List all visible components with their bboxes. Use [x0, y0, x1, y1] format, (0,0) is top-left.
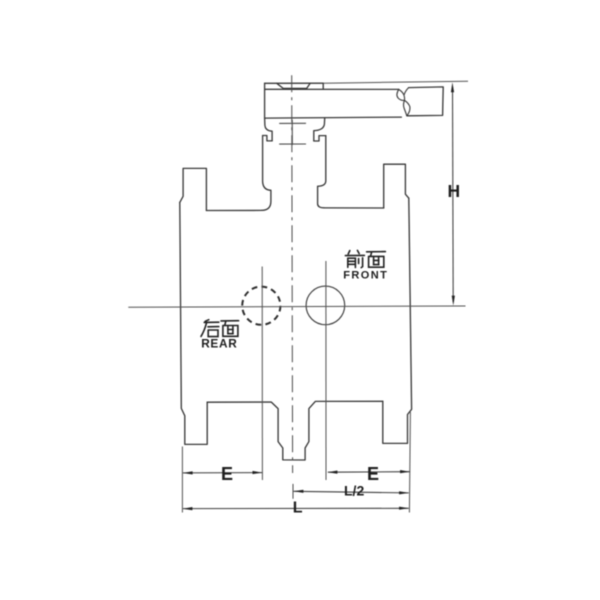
svg-text:REAR: REAR	[201, 337, 237, 351]
svg-text:H: H	[448, 181, 461, 201]
svg-text:FRONT: FRONT	[343, 270, 388, 282]
svg-text:L/2: L/2	[344, 483, 364, 499]
svg-text:L: L	[293, 500, 303, 517]
svg-text:E: E	[367, 464, 379, 484]
svg-text:E: E	[221, 464, 233, 484]
